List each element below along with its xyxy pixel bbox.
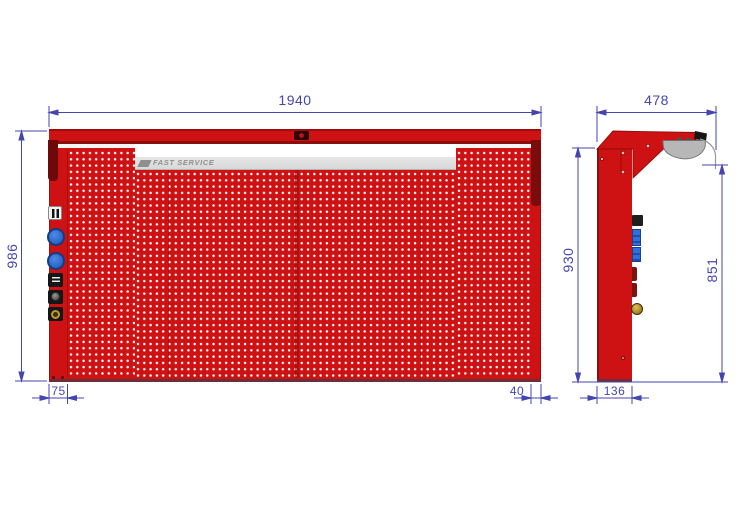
base-screw: [61, 376, 64, 379]
left-mount-bracket: [48, 140, 58, 181]
main-switch-icon: [48, 206, 62, 220]
brand-label-text: FAST SERVICE: [153, 157, 214, 169]
pegboard-field-right: [456, 150, 531, 378]
power-socket-blue-bottom-icon: [47, 252, 65, 270]
dim-left-column-label: 75: [44, 383, 73, 399]
front-panel-base-edge: [49, 379, 541, 382]
column-screw: [621, 356, 625, 360]
side-socket-blue-top-icon: [632, 229, 641, 246]
dim-depth-label: 478: [626, 92, 687, 108]
base-screw: [52, 376, 55, 379]
side-fitting: [632, 283, 637, 297]
dim-overall-width-label: 1940: [265, 92, 325, 108]
side-switch-box-icon: [632, 215, 643, 226]
side-air-coupler-icon: [631, 303, 643, 315]
lamp-clip: [677, 138, 682, 142]
arm-end-cap: [694, 131, 707, 141]
data-outlet-icon: [48, 273, 63, 287]
side-view-base-edge: [597, 379, 632, 382]
right-mount-bracket: [531, 140, 541, 206]
technical-drawing-canvas: FAST SERVICE: [0, 0, 750, 530]
side-fitting: [632, 267, 637, 281]
brand-label-strip: FAST SERVICE: [135, 157, 456, 170]
dim-overall-height-label: 986: [4, 231, 20, 281]
panel-seam-3: [420, 150, 421, 378]
dim-panel-height-label: 930: [560, 235, 576, 285]
rail-center-clip: [294, 131, 309, 140]
lamp-clip: [686, 138, 691, 142]
side-socket-blue-bottom-icon: [632, 247, 641, 262]
arm-screw: [646, 144, 649, 147]
pegboard-field-left: [68, 150, 135, 378]
fast-service-logo-icon: [137, 160, 151, 167]
lamp-shade: [663, 141, 705, 159]
dim-right-margin-label: 40: [504, 383, 530, 399]
air-coupler-icon: [48, 307, 63, 321]
power-socket-blue-top-icon: [47, 228, 65, 246]
dim-lamp-clearance-label: 851: [704, 245, 720, 295]
round-button-icon: [48, 290, 63, 304]
label-notch: [135, 144, 456, 157]
dim-base-depth-label: 136: [600, 383, 629, 399]
lamp-frame-curve: [700, 139, 716, 169]
panel-seam-1: [168, 150, 169, 378]
accessory-column-seam: [67, 150, 68, 378]
side-view-column: [597, 148, 632, 382]
panel-seam-2: [295, 150, 299, 378]
